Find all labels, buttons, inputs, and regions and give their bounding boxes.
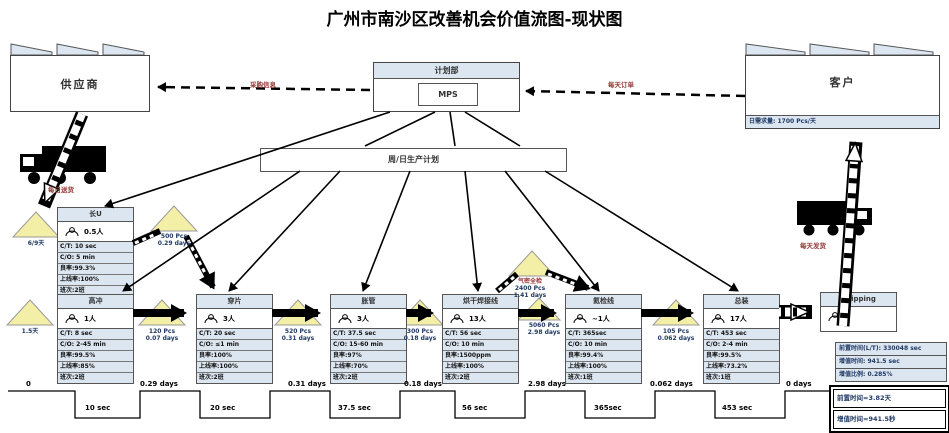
timeline-ladder (8, 391, 829, 418)
process-metric: C/O: 10 min (566, 340, 641, 351)
process-box-hongganhanjie: 烘干焊接线 13人 C/T: 56 sec C/O: 10 min 良率:150… (442, 294, 519, 384)
process-title: 高冲 (58, 295, 133, 309)
process-title: Shipping (821, 293, 896, 307)
process-metric: 上线率:100% (566, 362, 641, 373)
inventory-label: 2400 Pcs (498, 285, 562, 292)
process-metric: 良率:99.5% (704, 351, 779, 362)
schedule-box: 周/日生产计划 (260, 148, 567, 172)
timeline-wait-label: 2.98 days (528, 380, 566, 388)
vsm-canvas: 广州市南沙区改善机会价值流图-现状图 (0, 0, 949, 433)
daily-order-label: 每天订单 (608, 79, 634, 89)
timeline-wait-label: 0 (26, 380, 31, 388)
timeline-process-label: 10 sec (85, 404, 110, 412)
inventory-label: 0.31 days (268, 335, 328, 342)
timeline-process-label: 37.5 sec (338, 404, 371, 412)
process-metric: 上线率:100% (443, 362, 518, 373)
process-title: 总装 (704, 295, 779, 309)
factory-roof-icon (10, 40, 148, 56)
process-box-chuanpian: 穿片 3人 C/T: 20 sec C/O: ≤1 min 良率:100% 上线… (196, 294, 273, 384)
inventory-label: 500 Pcs (144, 233, 204, 240)
process-metric: C/O: 5 min (58, 253, 133, 264)
operator-count: 17人 (730, 314, 747, 324)
customer-demand: 日需求量: 1700 Pcs/天 (746, 115, 939, 128)
process-title: 穿片 (197, 295, 272, 309)
process-metric: C/O: 2-4 min (704, 340, 779, 351)
inventory-triangle-icon (652, 299, 700, 326)
inventory-label: 300 Pcs (390, 328, 450, 335)
operator-icon (827, 311, 843, 322)
process-metric: C/O: 10 min (443, 340, 518, 351)
timeline-wait-label: 0.29 days (140, 380, 178, 388)
operator-count: 3人 (357, 314, 369, 324)
truck-icon (793, 196, 875, 238)
purchase-info-label: 采购信息 (250, 79, 276, 89)
summary-row: 增值时间: 941.5 sec (836, 356, 946, 369)
operator-icon (64, 226, 80, 237)
process-metric: C/T: 8 sec (58, 329, 133, 340)
timeline-process-label: 453 sec (722, 404, 752, 412)
process-metric: C/O: 2-45 min (58, 340, 133, 351)
operator-count: 13人 (469, 314, 486, 324)
process-metric: 上线率:100% (197, 362, 272, 373)
operator-count: 1人 (84, 314, 96, 324)
process-metric: 上线率:85% (58, 362, 133, 373)
process-box-haijian: 氦检线 ~1人 C/T: 365sec C/O: 10 min 良率:99.4%… (565, 294, 642, 384)
planning-box: 计划部 MPS (373, 62, 520, 112)
inventory-triangle-icon (12, 211, 60, 238)
customer-box: 客户 日需求量: 1700 Pcs/天 (745, 55, 940, 129)
process-metric: 良率:99.3% (58, 264, 133, 275)
process-box-shipping: Shipping (820, 292, 897, 332)
process-metric: C/T: 20 sec (197, 329, 272, 340)
timeline-process-label: 56 sec (462, 404, 487, 412)
daily-delivery-label: 每日送货 (48, 184, 74, 194)
process-box-gaochong: 高冲 1人 C/T: 8 sec C/O: 2-45 min 良率:99.5% … (57, 294, 134, 384)
process-metric: 良率:97% (331, 351, 406, 362)
process-metric: C/T: 365sec (566, 329, 641, 340)
summary-row: 前置时间(L/T): 330048 sec (836, 343, 946, 356)
operator-count: ~1人 (592, 314, 610, 324)
operator-count: 3人 (223, 314, 235, 324)
factory-roof-icon (745, 40, 938, 56)
timeline-process-label: 365sec (594, 404, 622, 412)
mps-box: MPS (418, 83, 478, 106)
process-box-zongzhuang: 总装 17人 C/T: 453 sec C/O: 2-4 min 良率:99.5… (703, 294, 780, 384)
process-metric: C/T: 453 sec (704, 329, 779, 340)
process-metric: 班次:1班 (704, 373, 779, 383)
inventory-triangle-icon (274, 299, 322, 326)
summary-note: 增值时间=941.5秒 (833, 410, 946, 429)
process-title: 胀管 (331, 295, 406, 309)
timeline-wait-label: 0.31 days (288, 380, 326, 388)
process-title: 氦检线 (566, 295, 641, 309)
inventory-label: 1.41 days (498, 292, 562, 299)
inventory-label: 0.18 days (390, 335, 450, 342)
summary-metrics-box: 前置时间(L/T): 330048 sec 增值时间: 941.5 sec 增值… (835, 342, 947, 382)
operator-icon (710, 313, 726, 324)
timeline-wait-label: 0 days (786, 380, 812, 388)
inventory-triangle-icon (517, 297, 561, 321)
inventory-label: 6/9天 (6, 240, 66, 247)
process-metric: 良率:99.5% (58, 351, 133, 362)
timeline-wait-label: 0.18 days (404, 380, 442, 388)
inventory-triangle-icon (138, 299, 186, 326)
process-box-changu: 长U 0.5人 C/T: 10 sec C/O: 5 min 良率:99.3% … (57, 207, 134, 297)
page-title: 广州市南沙区改善机会价值流图-现状图 (0, 5, 949, 30)
process-metric: 良率:100% (197, 351, 272, 362)
process-metric: C/T: 10 sec (58, 242, 133, 253)
truck-icon (14, 140, 110, 186)
inventory-triangle-icon (508, 250, 556, 277)
summary-row: 增值比例: 0.285% (836, 369, 946, 381)
process-metric: 班次:1班 (566, 373, 641, 383)
process-metric: 良率:99.4% (566, 351, 641, 362)
process-title: 长U (58, 208, 133, 222)
inventory-label: 0.07 days (132, 335, 192, 342)
inventory-label: 120 Pcs (132, 328, 192, 335)
supplier-box: 供应商 (10, 55, 150, 112)
inventory-label: 105 Pcs (646, 328, 706, 335)
process-metric: 上线率:70% (331, 362, 406, 373)
customer-label: 客户 (746, 74, 939, 90)
operator-count: 0.5人 (84, 227, 103, 237)
planning-label: 计划部 (374, 63, 519, 79)
operator-icon (572, 313, 588, 324)
daily-ship-label: 每天发货 (800, 240, 826, 250)
operator-icon (203, 313, 219, 324)
process-metric: 上线率:73.2% (704, 362, 779, 373)
process-metric: C/O: ≤1 min (197, 340, 272, 351)
inventory-label: 1.5天 (0, 328, 60, 335)
inventory-label: 2.98 days (516, 329, 572, 336)
process-metric: 班次:2班 (58, 373, 133, 383)
process-metric: 班次:2班 (331, 373, 406, 383)
inventory-label: 气密全检 (498, 278, 562, 285)
summary-notes-box: 前置时间=3.82天 增值时间=941.5秒 (829, 385, 949, 433)
inventory-label: 520 Pcs (268, 328, 328, 335)
supplier-label: 供应商 (11, 76, 149, 92)
process-metric: 班次:2班 (443, 373, 518, 383)
inventory-triangle-icon (150, 205, 198, 232)
inventory-label: 5060 Pcs (516, 322, 572, 329)
inventory-triangle-icon (6, 299, 54, 326)
summary-note: 前置时间=3.82天 (833, 389, 946, 408)
inventory-label: 0.29 days (144, 240, 204, 247)
operator-icon (337, 313, 353, 324)
inventory-label: 0.062 days (646, 335, 706, 342)
process-metric: C/T: 56 sec (443, 329, 518, 340)
timeline-wait-label: 0.062 days (650, 380, 693, 388)
operator-icon (449, 313, 465, 324)
timeline-process-label: 20 sec (210, 404, 235, 412)
process-metric: 良率:1500ppm (443, 351, 518, 362)
process-metric: 班次:2班 (197, 373, 272, 383)
operator-icon (64, 313, 80, 324)
process-metric: 上线率:100% (58, 275, 133, 286)
